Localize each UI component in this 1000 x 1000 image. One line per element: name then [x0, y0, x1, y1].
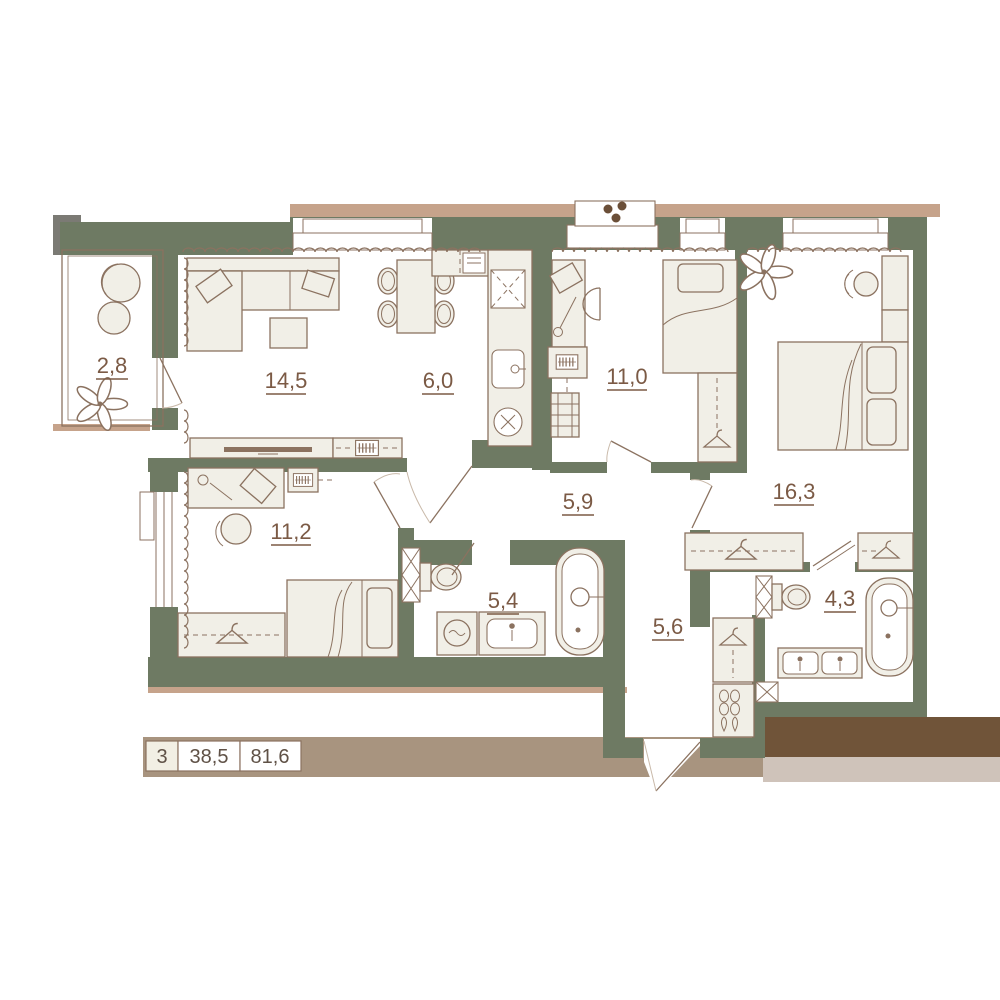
stove-icon — [494, 408, 522, 436]
window-bedroom-top — [680, 218, 725, 250]
room-area-label-kitchen: 6,0 — [423, 368, 454, 393]
shelf-icon — [548, 347, 587, 392]
window-living — [293, 218, 432, 250]
door-bedroom-top — [607, 441, 651, 462]
room-area-label-corridor: 5,6 — [653, 614, 684, 639]
door-kitchen-hall — [407, 466, 472, 523]
room-area-label-balcony: 2,8 — [97, 353, 128, 378]
round-chair-icon — [845, 270, 878, 298]
shoe-rack-icon — [713, 684, 754, 737]
legend-living-area: 38,5 — [190, 746, 229, 768]
balcony — [62, 250, 163, 432]
legend-table: 3 38,5 81,6 — [146, 741, 301, 771]
room-area-label-bedroom-top: 11,0 — [606, 364, 647, 389]
window-bedroom-primary — [783, 218, 888, 250]
washer-slot-icon — [756, 682, 778, 702]
floor-plan-canvas: 2,8 14,5 6,0 11,0 16,3 11,2 5,9 5,4 5,6 … — [0, 0, 1000, 1000]
bedroom-second-furniture — [178, 468, 398, 657]
balcony-table-icon — [98, 302, 130, 334]
washing-machine-icon — [437, 612, 477, 655]
double-sink-icon — [778, 648, 862, 678]
room-area-label-bedroom-second: 11,2 — [270, 519, 311, 544]
door-bedroom-primary — [691, 480, 712, 528]
stairwell-light-band — [763, 757, 1000, 782]
legend-total-area: 81,6 — [251, 746, 290, 768]
living-room-furniture — [187, 258, 402, 458]
shaft-icon — [756, 576, 772, 618]
floor-plan-page: 2,8 14,5 6,0 11,0 16,3 11,2 5,9 5,4 5,6 … — [0, 0, 1000, 1000]
door-bedroom-second — [374, 474, 400, 528]
legend-rooms-count: 3 — [156, 746, 167, 768]
toilet-icon — [420, 563, 461, 591]
wardrobe-icon — [698, 373, 737, 462]
sink-icon — [479, 612, 545, 655]
chair-icon — [216, 514, 251, 546]
bathtub-icon — [556, 548, 604, 655]
room-area-label-ensuite: 4,3 — [825, 586, 856, 611]
room-area-label-bathroom: 5,4 — [488, 588, 519, 613]
bookshelf-icon — [333, 438, 402, 458]
corridor-furniture — [713, 618, 754, 737]
wardrobe-icon — [713, 618, 754, 682]
wardrobe-icon — [178, 613, 285, 657]
room-area-label-hallway: 5,9 — [563, 489, 594, 514]
stairwell-band — [763, 717, 1000, 757]
wardrobe-icon — [685, 533, 803, 570]
room-area-label-living: 14,5 — [265, 368, 308, 393]
balcony-armchair-icon — [101, 264, 140, 302]
desk-icon — [550, 260, 585, 347]
kitchen-sink-icon — [492, 350, 526, 388]
wardrobe-column-icon — [882, 256, 908, 342]
door-ensuite — [813, 541, 855, 570]
ladder-shelf-icon — [551, 393, 579, 437]
toilet-icon — [772, 584, 810, 610]
desk-icon — [188, 468, 284, 508]
wardrobe-icon — [858, 533, 913, 570]
sofa-icon — [187, 258, 339, 351]
single-bed-icon — [663, 260, 737, 373]
single-bed-icon — [287, 580, 398, 657]
plant-icon — [74, 376, 127, 432]
shaft-icon — [402, 548, 420, 602]
double-bed-icon — [778, 342, 908, 450]
window-bedroom-second — [140, 492, 178, 607]
coffee-table-icon — [270, 318, 307, 348]
fridge-icon — [491, 270, 525, 308]
bedroom-top-furniture — [548, 260, 737, 462]
room-area-label-bedroom-primary: 16,3 — [773, 479, 816, 504]
kitchen-furniture — [378, 250, 532, 446]
bathtub-icon — [866, 578, 913, 676]
tv-console-icon — [190, 438, 333, 458]
vent-shaft — [567, 201, 658, 248]
